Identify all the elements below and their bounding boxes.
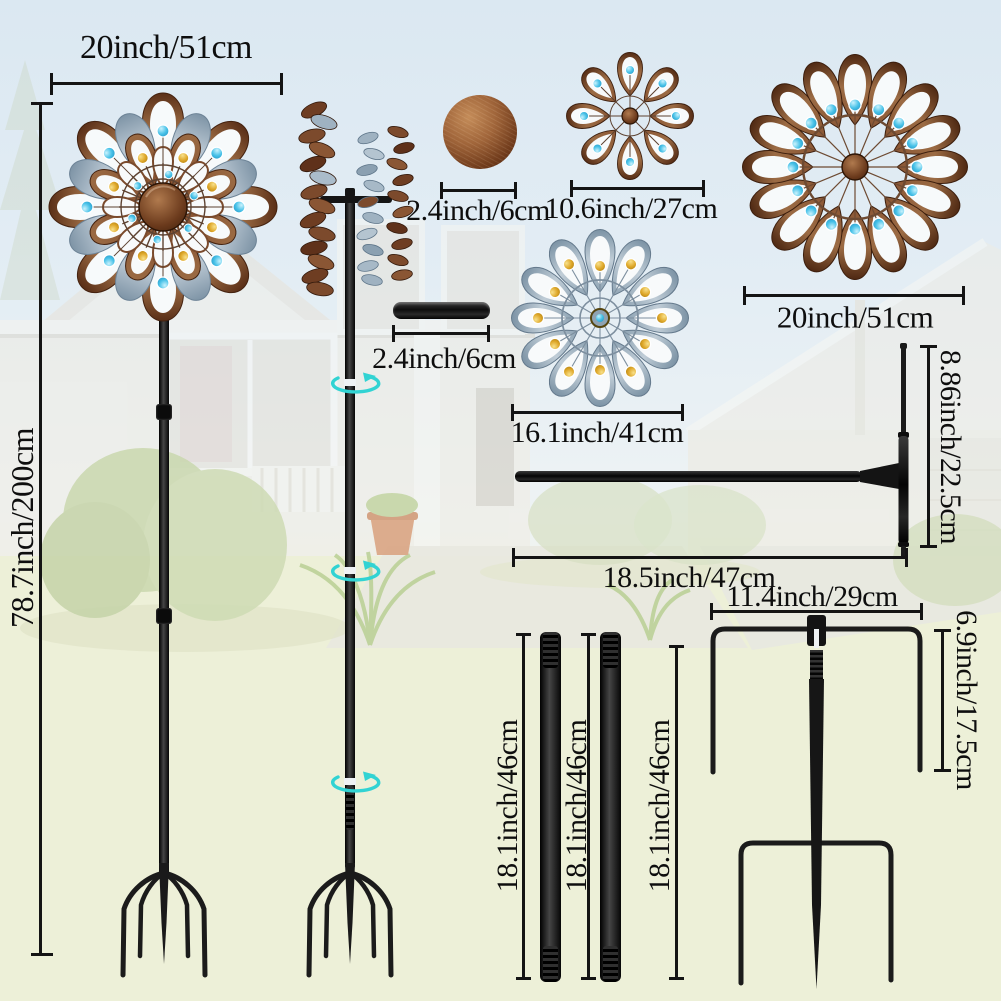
extension-pole-1	[540, 632, 561, 982]
crossbar-rod	[510, 338, 950, 568]
small-copper-rotor	[566, 52, 694, 180]
dim-total-height-label: 78.7inch/200cm	[6, 428, 38, 628]
rotation-arrow-icon	[324, 771, 384, 797]
dim-small-rotor-line	[570, 187, 705, 190]
dim-cap-line	[440, 189, 517, 192]
dim-stake-prong-label: 6.9inch/17.5cm	[951, 610, 981, 790]
dim-rotor-width-line	[50, 82, 283, 85]
pole-joint	[156, 404, 172, 420]
dim-crossbar-height-line	[927, 345, 930, 548]
dim-stake-prong-line	[941, 629, 944, 772]
dim-cap-label: 2.4inch/6cm	[406, 196, 550, 226]
dim-stake-spike-label: 18.1inch/46cm	[645, 720, 675, 893]
dim-pole-b-label: 18.1inch/46cm	[562, 720, 592, 893]
finial-cap-ball	[443, 95, 517, 169]
ground-stake-right	[286, 853, 414, 985]
dim-small-rotor-label: 10.6inch/27cm	[545, 194, 718, 224]
dim-crossbar-height-label: 8.86inch/22.5cm	[935, 350, 965, 544]
pole-joint	[156, 608, 172, 624]
dim-connector-line	[392, 332, 490, 335]
dim-rotor-width-label: 20inch/51cm	[80, 31, 252, 65]
dim-large-rotor-label: 20inch/51cm	[777, 302, 933, 333]
connector-tube	[393, 302, 490, 319]
product-dimension-diagram: 20inch/51cm 78.7inch/200cm	[0, 0, 1001, 1001]
main-spinner-pole	[159, 316, 169, 874]
dim-connector-label: 2.4inch/6cm	[372, 344, 516, 374]
ground-stake-left	[100, 853, 228, 985]
dim-pole-a-label: 18.1inch/46cm	[493, 720, 523, 893]
rotor-hub	[139, 183, 187, 231]
rotation-arrow-icon	[324, 560, 384, 586]
dim-crossbar-length-line	[512, 556, 908, 559]
large-copper-rotor	[737, 49, 973, 285]
rotation-arrow-icon	[324, 372, 384, 398]
main-spinner-rotor	[48, 92, 278, 322]
extension-pole-2	[600, 632, 621, 982]
dim-large-rotor-line	[743, 294, 965, 297]
